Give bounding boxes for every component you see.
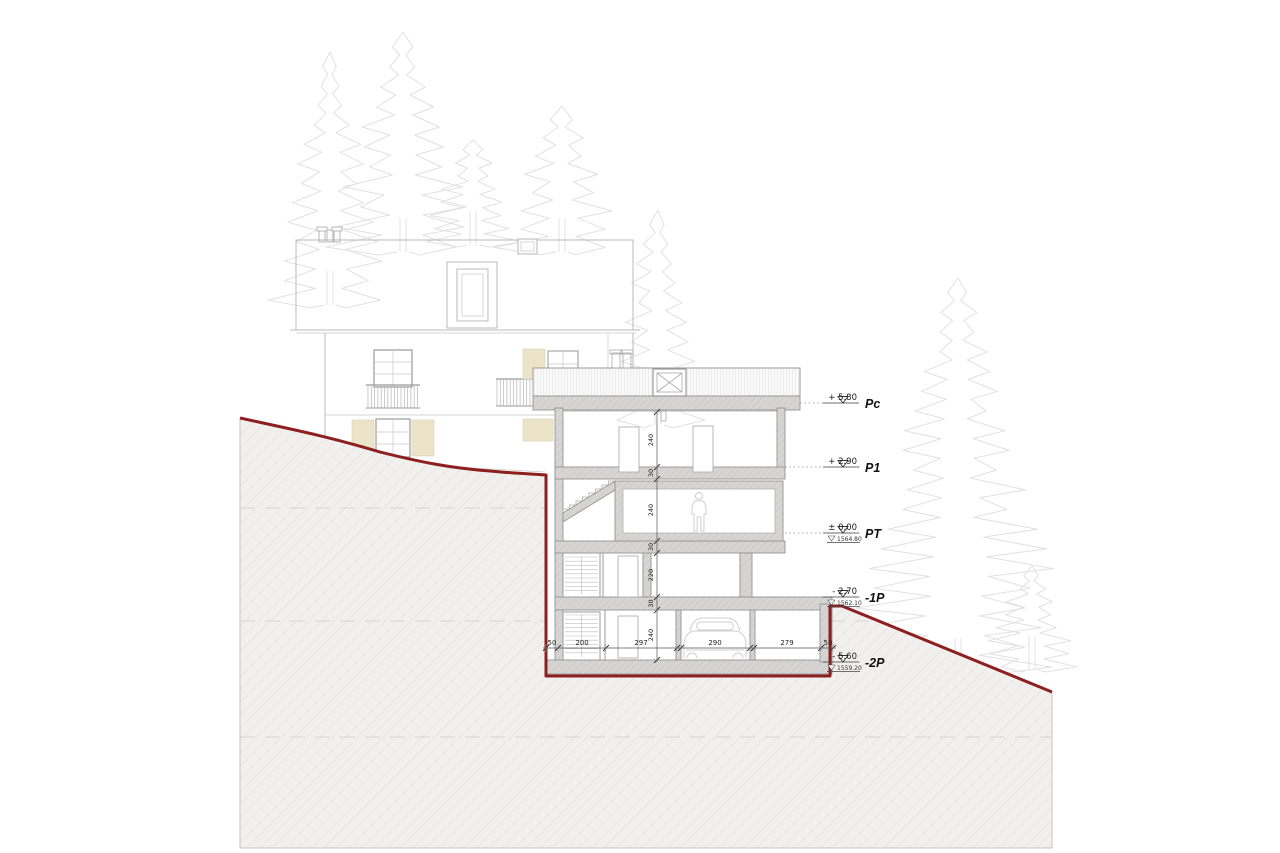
garage-wall-2 bbox=[750, 610, 755, 660]
door-garage bbox=[618, 616, 638, 658]
window-shutter bbox=[412, 420, 434, 456]
dim-value: 50 bbox=[548, 639, 557, 647]
window-shutter bbox=[523, 419, 553, 441]
slab-foundation bbox=[545, 660, 832, 674]
beam-tab bbox=[661, 411, 666, 421]
level-label: -2P bbox=[865, 656, 885, 670]
background-house-elevation bbox=[290, 227, 640, 472]
skylight-icon bbox=[653, 369, 686, 396]
storey-m2-garage bbox=[563, 610, 820, 660]
level-value: - 5.60 bbox=[832, 652, 857, 662]
upper-window bbox=[374, 350, 412, 387]
left-wall-cut bbox=[555, 408, 563, 660]
dim-value: 240 bbox=[647, 434, 655, 446]
dim-value: 297 bbox=[634, 639, 647, 647]
garage-wall-1 bbox=[676, 610, 681, 660]
slab-p1 bbox=[555, 467, 785, 479]
level-marker-pt: ± 0.00 1564.80 PT bbox=[785, 523, 882, 543]
dim-value: 200 bbox=[575, 639, 588, 647]
level-value: - 2.70 bbox=[832, 587, 857, 597]
level-label: PT bbox=[865, 527, 882, 541]
dim-value: 50 bbox=[824, 639, 833, 647]
pine-tree bbox=[326, 32, 467, 255]
dim-value: 30 bbox=[647, 599, 655, 607]
dim-value: 279 bbox=[780, 639, 793, 647]
section-building bbox=[533, 350, 832, 674]
pine-tree bbox=[988, 566, 1076, 672]
level-label: -1P bbox=[865, 591, 885, 605]
slab-m1 bbox=[555, 597, 832, 610]
dormer-window bbox=[447, 262, 497, 328]
dim-value: 220 bbox=[647, 569, 655, 581]
door-p1-right bbox=[693, 426, 713, 472]
architectural-section-drawing: + 5.80 Pc + 2.90 P1 ± 0.00 1564.80 PT - … bbox=[0, 0, 1280, 853]
level-altitude: 1564.80 bbox=[837, 536, 862, 543]
level-altitude: 1562.10 bbox=[837, 600, 862, 607]
garage-bay-3 bbox=[755, 610, 820, 660]
slab-pt bbox=[555, 541, 785, 553]
level-label: Pc bbox=[865, 397, 880, 411]
dim-value: 30 bbox=[647, 469, 655, 477]
storey-p1 bbox=[563, 411, 777, 472]
storey-pt bbox=[563, 481, 783, 541]
right-wall-m1 bbox=[740, 553, 752, 597]
dim-value: 240 bbox=[647, 629, 655, 641]
storey-m1 bbox=[563, 553, 752, 597]
pine-tree bbox=[268, 52, 382, 308]
garage-bay-1 bbox=[605, 610, 676, 660]
stair-stringer bbox=[563, 481, 615, 522]
room-m1-large bbox=[651, 553, 740, 597]
pine-tree bbox=[856, 278, 1053, 675]
level-value: ± 0.00 bbox=[828, 523, 857, 533]
balcony-railing bbox=[366, 385, 420, 408]
pine-tree bbox=[494, 106, 612, 255]
section-svg: + 5.80 Pc + 2.90 P1 ± 0.00 1564.80 PT - … bbox=[0, 0, 1280, 853]
level-marker-p1: + 2.90 P1 bbox=[785, 457, 880, 475]
level-label: P1 bbox=[865, 461, 880, 475]
level-altitude: 1559.20 bbox=[837, 665, 862, 672]
dim-value: 290 bbox=[708, 639, 721, 647]
balcony-railing-2 bbox=[496, 379, 533, 406]
level-marker-pc: + 5.80 Pc bbox=[800, 393, 880, 411]
dim-value: 240 bbox=[647, 504, 655, 516]
door-m1 bbox=[618, 556, 638, 597]
roof-chimney-icon bbox=[610, 350, 633, 368]
dim-value: 30 bbox=[647, 543, 655, 551]
level-value: + 5.80 bbox=[828, 393, 857, 403]
right-wall-p1-cut bbox=[777, 408, 785, 469]
door-p1-left bbox=[619, 427, 639, 472]
level-value: + 2.90 bbox=[828, 457, 857, 467]
